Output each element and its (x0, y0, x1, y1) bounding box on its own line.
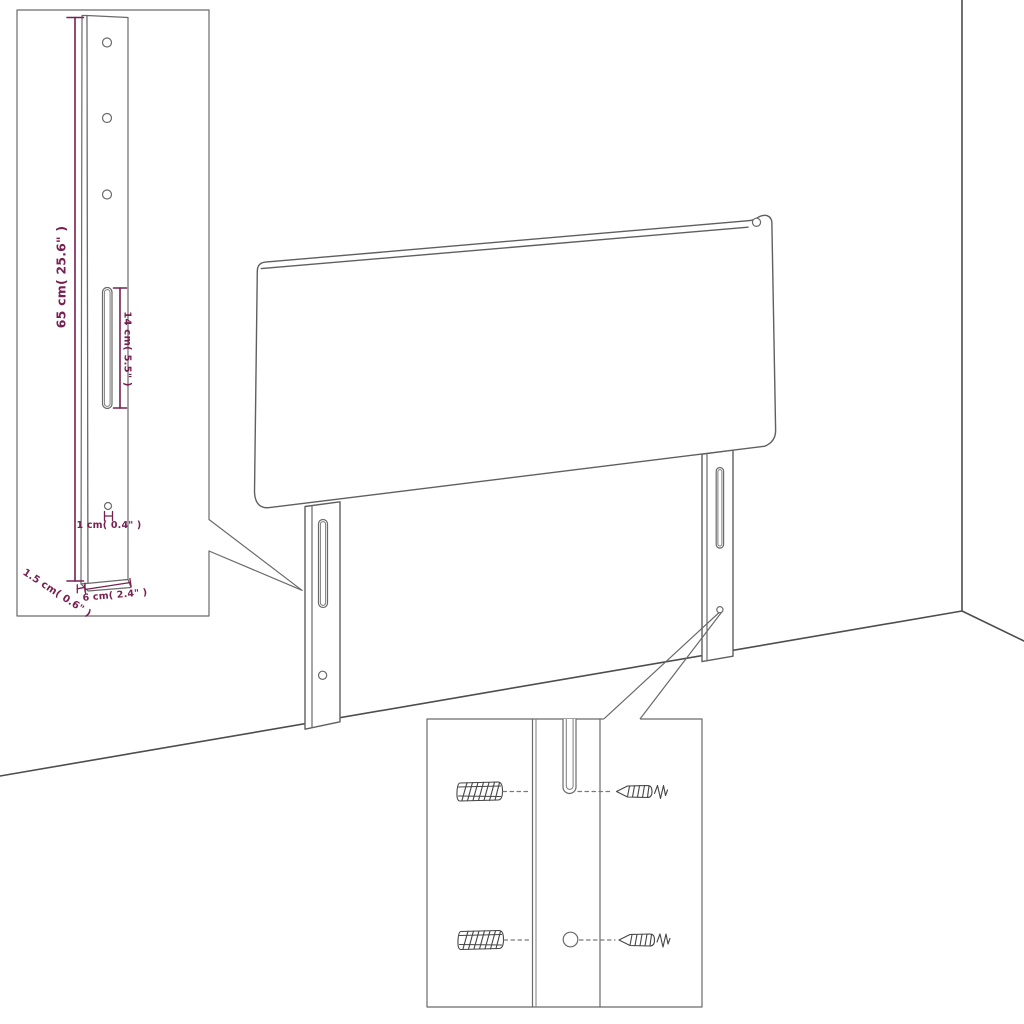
dimension-label-hole-diameter: 1 cm( 0.4" ) (77, 520, 142, 531)
product-dimension-diagram: 65 cm( 25.6" ) 14 cm( 5.5" ) 1 cm( 0.4" … (0, 0, 1024, 1024)
panel-top-right-curl (752, 218, 760, 226)
left-leg-slot (319, 520, 328, 608)
leg-detail-inset: 65 cm( 25.6" ) 14 cm( 5.5" ) 1 cm( 0.4" … (17, 10, 209, 620)
right-leg-slot (716, 468, 723, 549)
leg-small-hole-detail (105, 503, 112, 510)
left-leg-screw-hole (319, 671, 327, 679)
hardware-detail-inset (427, 719, 702, 1007)
dimension-label-leg-height: 65 cm( 25.6" ) (54, 226, 69, 328)
leg-hole-top (103, 38, 112, 47)
leg-detail-drawing (81, 16, 131, 592)
floor-line-right (962, 611, 1024, 641)
leg-hole-lower (103, 190, 112, 199)
diagram-canvas: 65 cm( 25.6" ) 14 cm( 5.5" ) 1 cm( 0.4" … (0, 0, 1024, 1024)
headboard-right-leg (702, 450, 733, 661)
callout-left-leg (209, 520, 302, 591)
hardware-round-hole (563, 932, 578, 947)
hardware-slot (563, 719, 576, 794)
leg-hole-middle (103, 114, 112, 123)
dimension-label-slot-length: 14 cm( 5.5" ) (122, 311, 133, 386)
headboard-panel (255, 215, 776, 507)
headboard-left-leg (305, 502, 340, 729)
right-leg-screw-hole (717, 607, 723, 613)
